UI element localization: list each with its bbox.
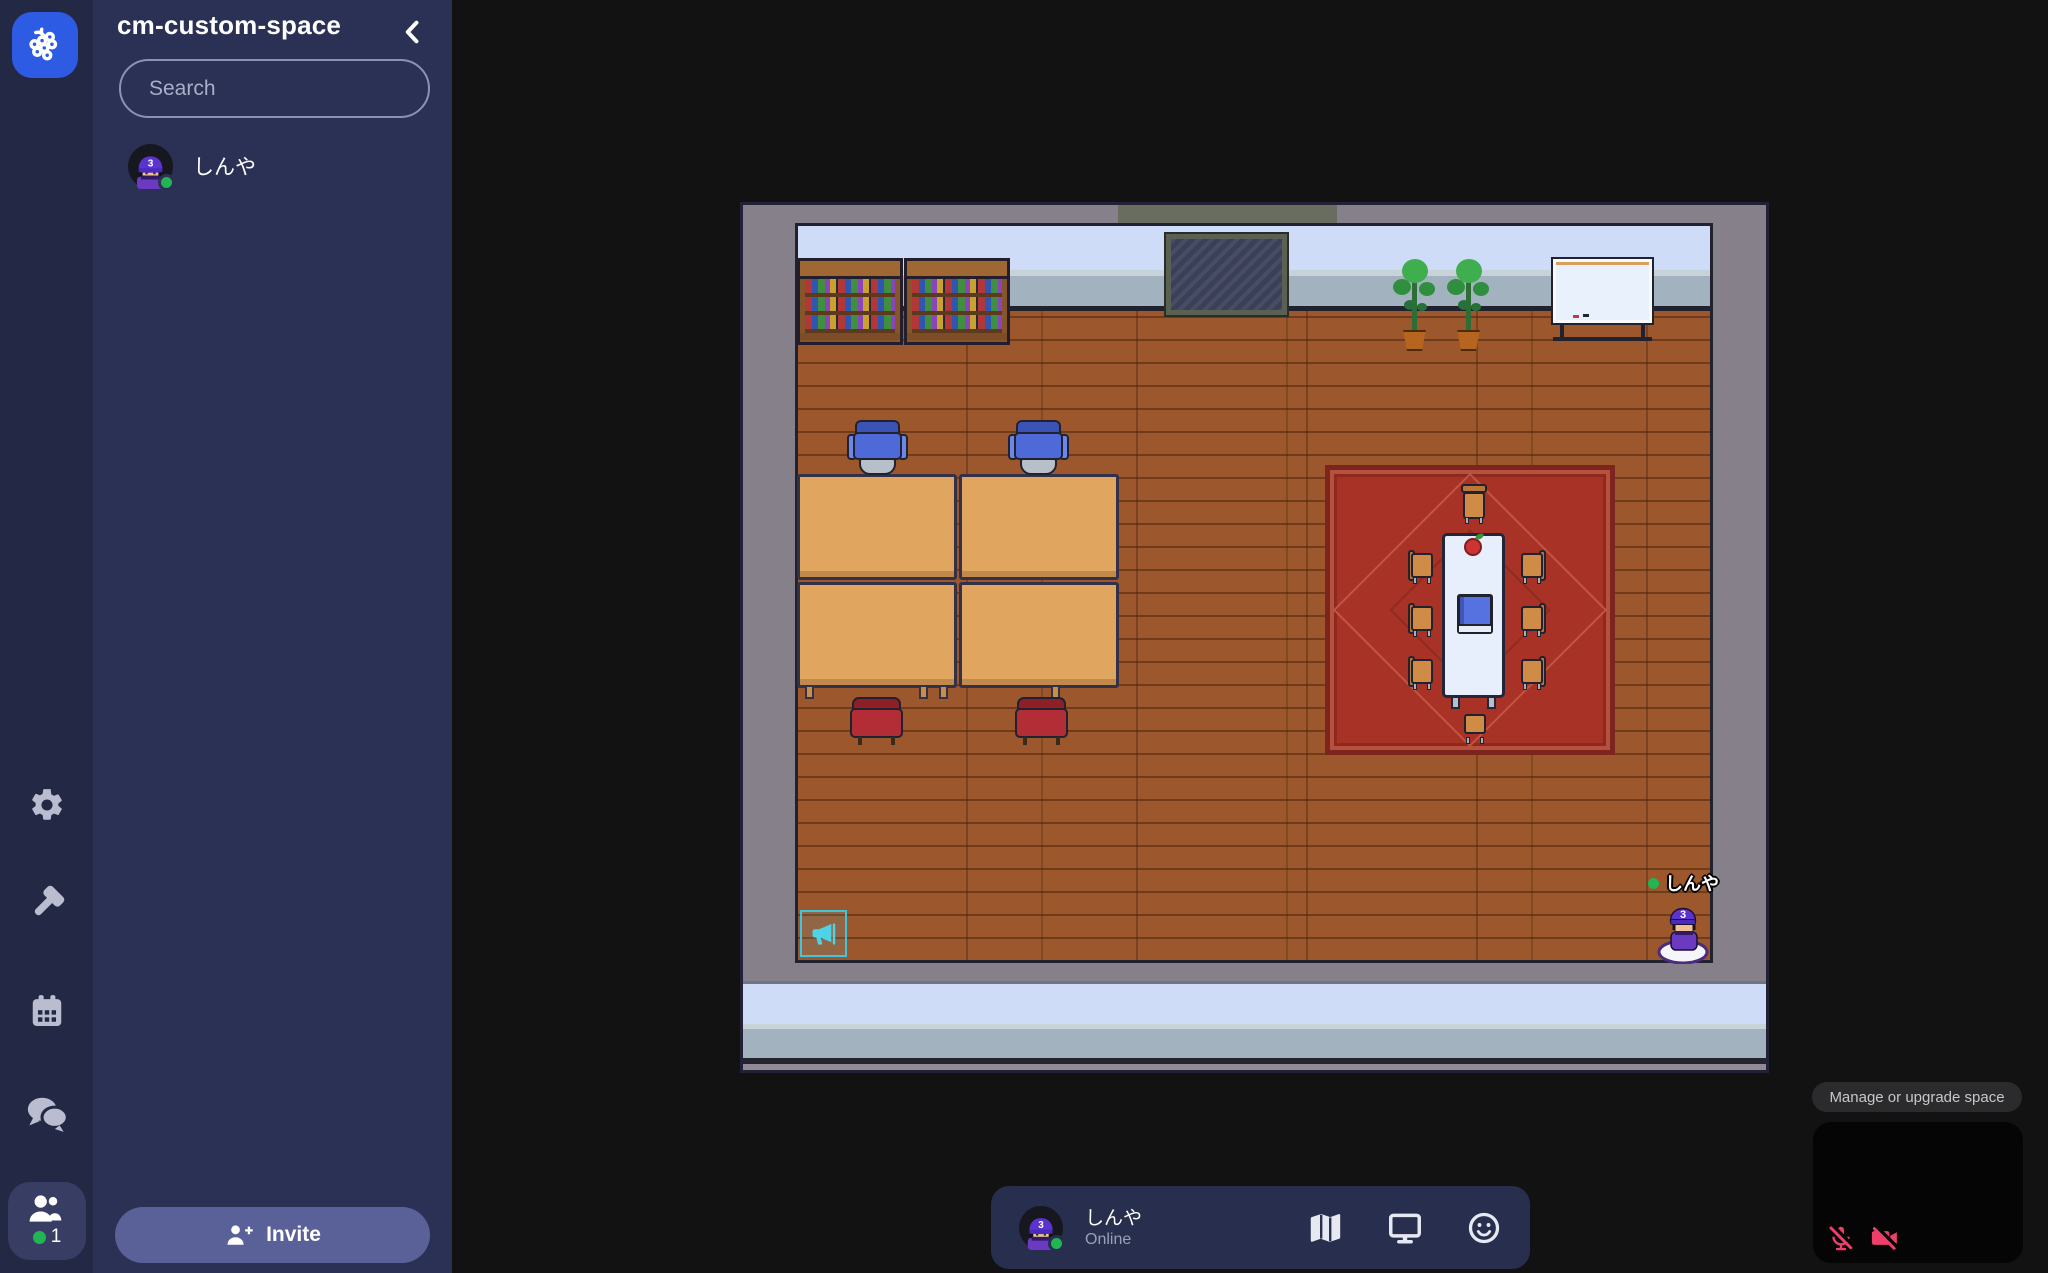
left-rail: 1 <box>0 0 93 1273</box>
player: しんや 3 <box>1648 866 1748 970</box>
settings-button[interactable] <box>0 778 93 832</box>
player-cap-badge: 3 <box>1680 909 1686 921</box>
book <box>1457 594 1493 634</box>
wooden-chair <box>1460 484 1488 524</box>
table-leg <box>1487 696 1496 709</box>
bookshelf <box>904 258 1010 345</box>
avatar-cap-badge: 3 <box>1038 1219 1044 1230</box>
camera-off-icon <box>1869 1223 1901 1253</box>
smiley-icon <box>1466 1210 1502 1246</box>
tv-screen <box>1164 232 1289 317</box>
participant-name: しんや <box>193 151 256 181</box>
gather-logo-icon <box>23 23 67 67</box>
table-leg <box>805 685 814 699</box>
control-bar: 3 しんや Online <box>991 1186 1530 1269</box>
sidebar-panel: cm-custom-space 3 <box>93 0 452 1273</box>
table-leg <box>919 685 928 699</box>
online-count: 1 <box>33 1226 62 1248</box>
emote-button[interactable] <box>1466 1210 1502 1246</box>
user-avatar: 3 <box>1019 1206 1063 1250</box>
online-dot-icon <box>33 1231 46 1244</box>
search-input[interactable] <box>149 77 420 101</box>
exterior-band <box>743 1064 1766 1070</box>
participant-row[interactable]: 3 しんや <box>111 134 433 198</box>
monitor-icon <box>1386 1209 1424 1247</box>
build-button[interactable] <box>0 876 93 930</box>
exterior-band <box>743 981 1766 1024</box>
exterior-band <box>743 1024 1766 1058</box>
people-icon <box>26 1194 68 1224</box>
wooden-chair <box>1518 601 1546 637</box>
desk-tables <box>797 474 1119 688</box>
meeting-rug <box>1325 465 1615 755</box>
table-leg <box>1451 696 1460 709</box>
doorway <box>1118 205 1337 223</box>
av-status <box>1826 1223 1901 1253</box>
gather-logo[interactable] <box>12 12 78 78</box>
wooden-chair <box>1518 654 1546 690</box>
hammer-icon <box>25 881 69 925</box>
gear-icon <box>28 786 66 824</box>
mic-off-button[interactable] <box>1826 1223 1856 1253</box>
person-plus-icon <box>224 1222 254 1248</box>
office-chair-blue <box>1008 420 1069 477</box>
wooden-chair <box>1408 654 1436 690</box>
stool <box>1461 712 1489 744</box>
table-leg <box>939 685 948 699</box>
chat-button[interactable] <box>0 1088 93 1142</box>
search-box[interactable] <box>119 59 430 118</box>
user-status: Online <box>1085 1230 1142 1249</box>
office-chair-blue <box>847 420 908 477</box>
game-canvas[interactable]: しんや 3 <box>743 205 1766 1070</box>
bookshelf <box>797 258 903 345</box>
mic-off-icon <box>1826 1223 1856 1253</box>
chair-red <box>850 697 903 745</box>
user-name: しんや <box>1085 1207 1142 1230</box>
space-title: cm-custom-space <box>117 10 387 41</box>
spotlight-tile[interactable] <box>800 910 847 957</box>
megaphone-icon <box>808 918 840 950</box>
wooden-chair <box>1408 548 1436 584</box>
control-bar-actions <box>1306 1209 1502 1247</box>
whiteboard <box>1553 259 1652 344</box>
chair-red <box>1015 697 1068 745</box>
chevron-left-icon <box>399 18 427 46</box>
collapse-sidebar-button[interactable] <box>393 12 433 52</box>
potted-plant <box>1442 257 1495 351</box>
map-button[interactable] <box>1306 1209 1344 1247</box>
manage-upgrade-button[interactable]: Manage or upgrade space <box>1812 1082 2022 1112</box>
invite-label: Invite <box>266 1223 321 1247</box>
wooden-chair <box>1518 548 1546 584</box>
status-dot <box>158 174 175 191</box>
calendar-icon <box>28 992 66 1030</box>
chat-icon <box>24 1092 70 1138</box>
calendar-button[interactable] <box>0 984 93 1038</box>
invite-button[interactable]: Invite <box>115 1207 430 1263</box>
player-sprite: 3 <box>1656 894 1716 964</box>
player-online-dot <box>1648 878 1659 889</box>
self-video-preview[interactable] <box>1813 1122 2023 1263</box>
screenshare-button[interactable] <box>1386 1209 1424 1247</box>
participants-button[interactable]: 1 <box>8 1182 86 1260</box>
participant-avatar: 3 <box>128 144 173 189</box>
user-status-dot <box>1048 1235 1065 1252</box>
player-name-text: しんや <box>1665 870 1719 896</box>
map-icon <box>1306 1209 1344 1247</box>
avatar-cap-badge: 3 <box>148 158 154 169</box>
apple <box>1464 538 1482 556</box>
user-chip[interactable]: 3 しんや Online <box>1019 1206 1142 1250</box>
camera-off-button[interactable] <box>1869 1223 1901 1253</box>
wooden-chair <box>1408 601 1436 637</box>
potted-plant <box>1388 257 1441 351</box>
player-name-label: しんや <box>1648 870 1719 896</box>
online-count-value: 1 <box>51 1226 62 1248</box>
